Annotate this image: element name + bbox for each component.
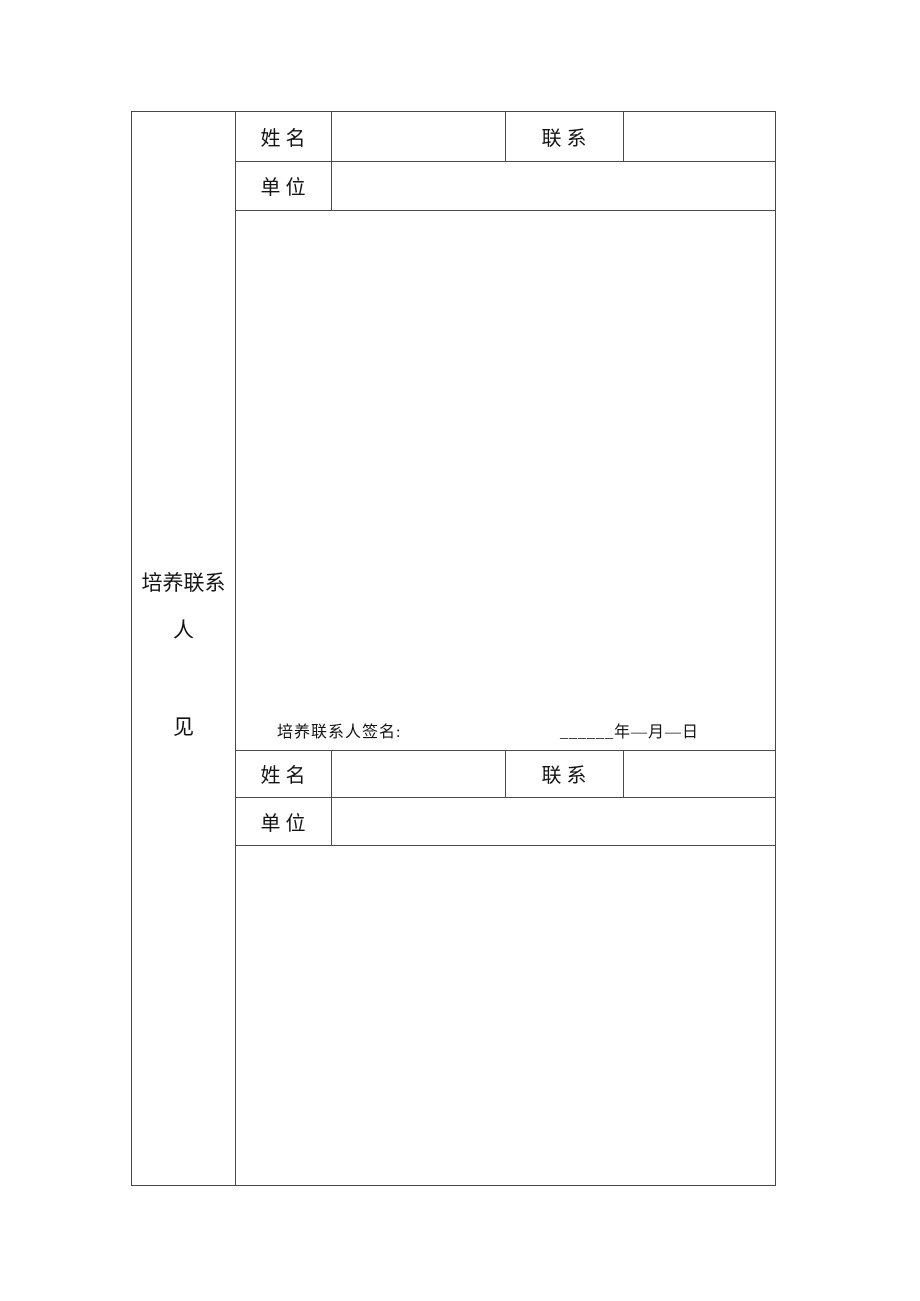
s1-name-label: 姓名 <box>235 112 331 161</box>
s2-contact-input-cell[interactable] <box>624 750 775 797</box>
s2-name-input-cell[interactable] <box>332 750 505 797</box>
s1-name-input-cell[interactable] <box>332 112 505 161</box>
row-header-line-3: 见 <box>132 712 235 742</box>
document-page: 培养联系 人 见 姓名 联系 单位 培养联系人签名: ______年—月—日 姓… <box>0 0 920 1301</box>
s1-contact-input-cell[interactable] <box>624 112 775 161</box>
row-header-cell: 培养联系 人 见 <box>132 112 235 1185</box>
s2-contact-label: 联系 <box>505 750 623 797</box>
s2-opinion-cell[interactable] <box>235 845 775 1185</box>
s2-name-label: 姓名 <box>235 750 331 797</box>
row-header-line-2: 人 <box>132 615 235 645</box>
row-header-line-1: 培养联系 <box>132 568 235 598</box>
s1-contact-label: 联系 <box>505 112 623 161</box>
s1-unit-label: 单位 <box>235 161 331 210</box>
s2-unit-input-cell[interactable] <box>332 797 775 845</box>
s1-opinion-cell[interactable]: 培养联系人签名: ______年—月—日 <box>235 210 775 750</box>
s1-signature-date: ______年—月—日 <box>560 718 699 742</box>
s1-signature-label: 培养联系人签名: <box>277 718 401 742</box>
s1-unit-input-cell[interactable] <box>332 161 775 210</box>
form-table: 培养联系 人 见 姓名 联系 单位 培养联系人签名: ______年—月—日 姓… <box>131 111 776 1186</box>
s2-unit-label: 单位 <box>235 797 331 845</box>
